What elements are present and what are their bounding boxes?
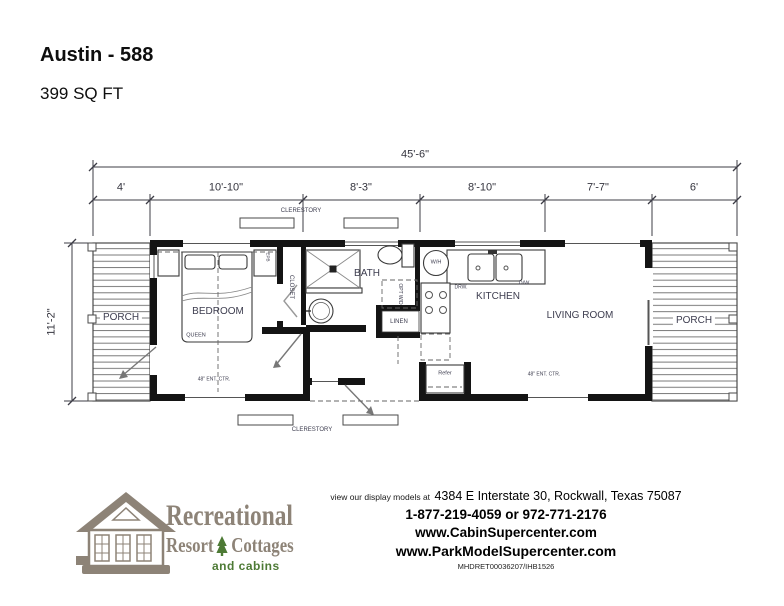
dim-overall-width: 45'-6" [401, 150, 429, 161]
pillow-left [185, 255, 215, 269]
drawer-label: DRW. [455, 286, 468, 291]
toilet-bowl [378, 246, 402, 264]
dimension-ticks [68, 163, 741, 405]
company-logo-text: Recreational Resort Cottages and cabins [166, 501, 329, 573]
contact-block: view our display models at 4384 E Inters… [314, 489, 698, 571]
address-line: view our display models at 4384 E Inters… [314, 489, 698, 504]
logo-word-resort: Resort [166, 535, 214, 556]
pine-tree-icon [217, 536, 228, 556]
phone-numbers: 1-877-219-4059 or 972-771-2176 [314, 508, 698, 522]
room-label-living: LIVING ROOM [547, 311, 614, 321]
website-cabin-supercenter: www.CabinSupercenter.com [314, 526, 698, 540]
dim-segment-3: 8'-3" [350, 183, 372, 194]
toilet-tank [402, 244, 414, 267]
room-label-closet: CLOSET [288, 275, 294, 299]
dim-segment-1: 4' [117, 183, 125, 194]
refrigerator [426, 365, 464, 393]
street-address: 4384 E Interstate 30, Rockwall, Texas 75… [434, 489, 681, 503]
dishwasher-label: D/W [519, 281, 530, 287]
nightstand-left [158, 250, 179, 276]
kitchen-sink-left [468, 254, 494, 281]
logo-tagline: and cabins [166, 559, 329, 573]
clerestory-label-top: CLERESTORY [281, 208, 321, 214]
clerestory-label-bottom: CLERESTORY [292, 427, 332, 433]
room-label-bath: BATH [354, 269, 380, 279]
dim-segment-2: 10'-10" [209, 183, 243, 194]
dim-segment-5: 7'-7" [587, 183, 609, 194]
water-heater-label: W/H [431, 260, 442, 266]
model-code: MHDRET00036207/IHB1526 [314, 562, 698, 571]
dim-segment-4: 8'-10" [468, 183, 496, 194]
room-label-porch-left: PORCH [100, 313, 142, 323]
ent-ctr-label-bedroom: 48" ENT. CTR. [198, 378, 231, 383]
address-prefix: view our display models at [330, 492, 430, 502]
room-label-porch-right: PORCH [673, 316, 715, 326]
dimension-lines [64, 160, 737, 401]
pillow-right [219, 255, 247, 269]
shower-drain [330, 266, 337, 273]
shower-sill [306, 288, 362, 293]
bed-size-label: QUEEN [186, 333, 206, 339]
refrigerator-label: Refer [438, 371, 451, 377]
website-park-model-supercenter: www.ParkModelSupercenter.com [314, 544, 698, 559]
logo-word-cottages: Cottages [231, 535, 294, 556]
kitchen-faucet [488, 250, 497, 254]
epb-label: EPB [265, 252, 270, 261]
linen-label: LINEN [390, 319, 408, 325]
room-label-bedroom: BEDROOM [192, 307, 244, 317]
kitchen-sink-right [496, 254, 522, 281]
logo-word-recreational: Recreational [166, 501, 293, 531]
cabin-logo-icon [76, 486, 176, 582]
flyer-page: Austin - 588 399 SQ FT [0, 0, 784, 606]
fixtures [158, 244, 545, 393]
room-label-kitchen: KITCHEN [476, 292, 520, 302]
ent-ctr-label-living: 48" ENT. CTR. [528, 373, 561, 378]
opt-wd-label: OPT W/D [396, 282, 402, 306]
dim-height: 11'-2" [47, 308, 58, 335]
dim-segment-6: 6' [690, 183, 698, 194]
